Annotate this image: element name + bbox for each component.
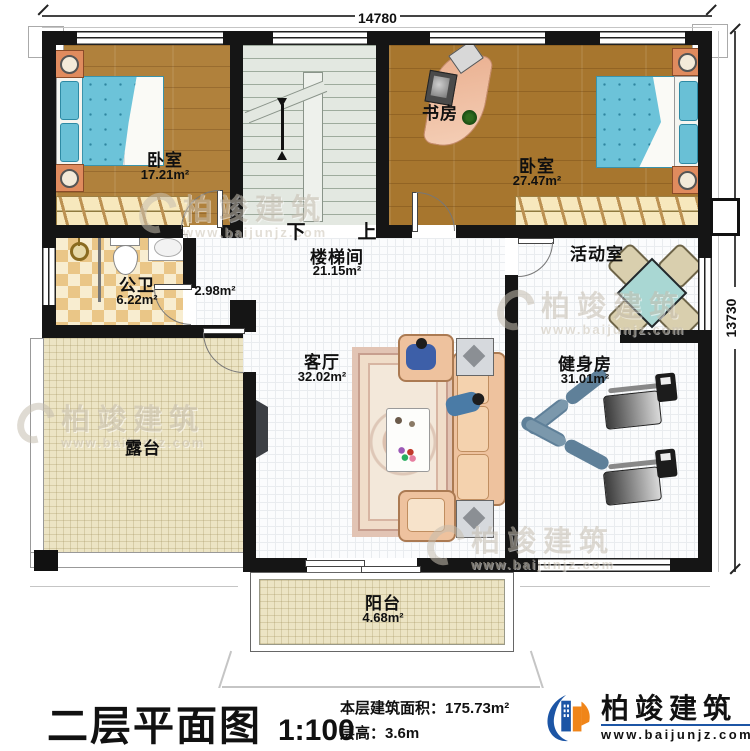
eave-line-terrace [30,586,238,587]
nightstand [54,50,84,78]
sofa-cushion [457,454,489,500]
balcony-slider-panel-1 [305,560,365,567]
eave-line-right [718,31,719,572]
room-area-bathroom: 6.22m² [116,292,157,307]
room-area-gym: 31.01m² [561,371,609,386]
person-sitting [406,344,436,370]
sink-basin [154,238,182,257]
wall-stairwell-right [376,31,389,238]
exterior-flue-box [710,198,740,236]
person-head [416,338,427,349]
window-left-bathroom [42,248,56,305]
plan-stats: 本层建筑面积：175.73m² 层高：3.6m [340,696,509,746]
room-area-stairwell: 21.15m² [313,263,361,278]
room-area-bedroom-left: 17.21m² [141,167,189,182]
brand-block: 柏竣建筑 www.baijunjz.com [543,694,750,742]
terrace-parapet-bottom [30,552,245,568]
window-top-bedroom-left [77,31,223,45]
treadmill-belt [603,390,662,430]
side-table-bottom [456,500,494,538]
balcony-eave-right [530,651,544,690]
wall-living-left-b [243,372,256,572]
table-cup [409,421,415,427]
nightstand [54,164,84,192]
floor-area-text: 本层建筑面积：175.73m² [340,696,509,721]
wall-hall-gym-divider [505,275,518,572]
window-top-bedroom-right [600,31,685,45]
terrace-parapet-left [30,338,44,568]
stair-arrowhead-top [277,98,287,112]
plant [462,110,477,125]
stair-down-label: 下 [286,217,305,244]
balcony-eave-left [218,651,232,690]
tv [256,400,268,458]
bed-headboard [56,76,84,166]
wall-study-bottom-b [456,225,712,238]
window-top-study [430,31,545,45]
dimension-tick [38,4,49,15]
shower-head [70,242,89,261]
coffee-table [386,408,430,472]
armchair-cushion [407,498,445,532]
room-label-terrace: 露台 [125,434,161,459]
armchair-bottom [398,490,456,542]
stair-arrowhead-bottom [277,146,287,160]
dimension-height: 13730 [723,287,739,349]
monitor-screen [431,76,450,98]
wall-activity-gym-stub [620,330,712,343]
title-block: 二层平面图 1:100 本层建筑面积：175.73m² 层高：3.6m 柏竣建筑… [0,688,750,751]
eave-line-top [42,27,712,28]
brand-url: www.baijunjz.com [601,724,750,742]
bed-blanket [637,77,677,167]
wall-bedroom-left-bottom-a [42,225,183,238]
side-table-top [456,338,494,376]
treadmill-screen [660,377,671,385]
treadmill [601,372,683,438]
floor-height-text: 层高：3.6m [340,721,509,746]
treadmill-belt [603,466,662,506]
stair-up-label: 上 [357,217,376,244]
wardrobe [56,196,190,227]
bed-mattress [596,76,676,168]
treadmill [601,448,683,514]
treadmill-console [655,372,678,402]
wall-bathroom-closet-divider [183,238,196,288]
treadmill-console [655,448,678,478]
side-table-lamp [463,345,486,368]
title-underline-group: 二层平面图 1:100 [45,692,363,751]
floor-plan-page: 卧室 17.21m² 书房 卧室 27.47m² 下 上 楼梯间 21.15m²… [0,0,750,751]
bed-pillow [679,81,698,121]
wall-bottom-gym [670,558,712,572]
eave-line-gym [520,586,710,587]
room-area-bedroom-right: 27.47m² [513,173,561,188]
balcony-slider-panel-2 [361,566,421,573]
table-flowers [395,445,417,463]
brand-name: 柏竣建筑 [601,694,750,724]
room-area-closet: 2.98m² [194,283,235,298]
wall-bottom-living-b [417,558,538,572]
window-bottom-gym [538,558,670,572]
dimension-tick [706,4,717,15]
treadmill-screen [660,453,671,461]
bed-pillow [60,81,79,120]
wall-study-bottom-a [389,225,412,238]
bed-pillow [679,124,698,164]
terrace-corner-post [34,550,58,571]
table-cup [395,417,402,424]
room-area-balcony: 4.68m² [362,610,403,625]
bed-pillow [60,123,79,162]
side-table-lamp [463,507,486,530]
wardrobe [515,196,699,227]
brand-logo-icon [543,694,593,742]
window-top-stairwell [273,31,367,45]
plan-title: 二层平面图 [47,692,262,751]
sink-counter [148,234,188,261]
dimension-width: 14780 [355,10,400,26]
wall-stairwell-left [230,31,243,238]
shower-partition [98,238,101,302]
room-label-activity: 活动室 [570,240,624,265]
room-label-study: 书房 [422,99,458,124]
shower-cord [78,238,80,246]
window-right-activity [698,258,712,330]
room-area-living: 32.02m² [298,369,346,384]
